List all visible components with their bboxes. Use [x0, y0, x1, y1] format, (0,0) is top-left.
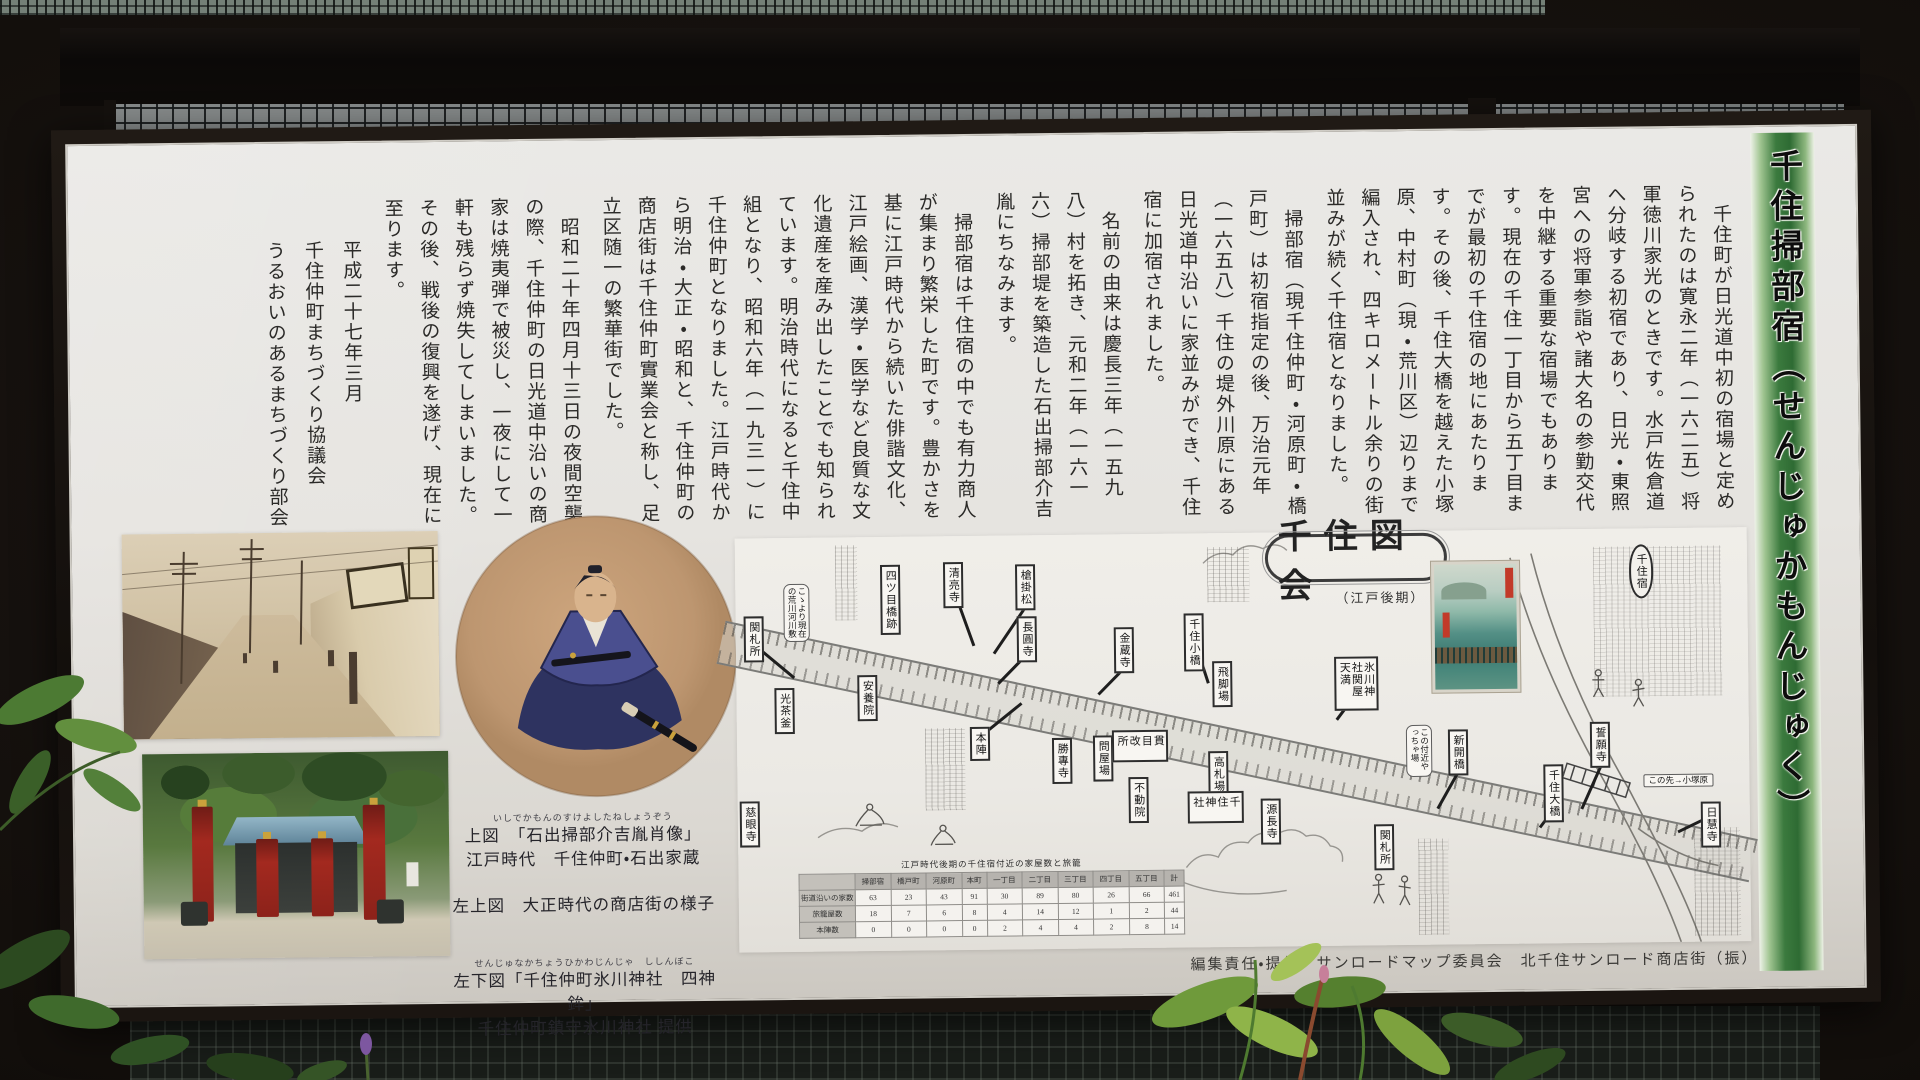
map-label: 慈眼寺	[740, 801, 761, 847]
paragraph: 掃部宿（現千住仲町・河原町・橋戸町）は初宿指定の後、万治元年（一六五八）千住の堤…	[1133, 188, 1312, 522]
map-label: 関札所	[744, 616, 765, 662]
map-label: 氷川神社関屋天満	[1334, 656, 1379, 710]
red-banner	[311, 838, 333, 916]
map-label: 千住小橋	[1184, 613, 1205, 671]
ukiyoe-cartouche	[1505, 568, 1514, 598]
handwritten-notes	[1593, 545, 1723, 696]
fence-mesh-top	[0, 0, 1545, 15]
shrine-roof	[222, 815, 369, 845]
caption-portrait-source: 江戸時代 千住仲町・石出家蔵	[447, 846, 719, 873]
household-table-wrap: 江戸時代後期の千住宿付近の家屋数と旅籠 掃部宿橋戸町河原町本町一丁目二丁目三丁目…	[798, 856, 1185, 939]
map-label: 清亮寺	[943, 562, 964, 608]
map-label: この付近やっちゃ場	[1406, 725, 1432, 777]
photo-hikawa-shrine	[142, 751, 450, 959]
caption-block: いしでかもんのすけよしたねしょうぞう 上図 「石出掃部介吉胤肖像」 江戸時代 千…	[447, 809, 722, 1042]
ukiyoe-cartouche	[1443, 612, 1450, 637]
map-label: こゝより現在の荒川河川敷	[783, 584, 809, 642]
signature-date: 平成二十七年三月	[332, 199, 371, 531]
map-label: 日慧寺	[1701, 801, 1722, 847]
stone-guardian	[376, 899, 404, 924]
map-label: 誓願寺	[1590, 722, 1611, 768]
ukiyoe-inset	[1430, 560, 1522, 694]
map-label: 金蔵寺	[1114, 627, 1135, 673]
body-text: 千住町が日光道中初の宿場と定められたのは寛永二年（一六二五）将軍徳川家光のときで…	[138, 183, 1742, 533]
map-label: 関札所	[1374, 824, 1395, 870]
map-label: 槍掛松	[1015, 564, 1036, 610]
map-label: この先→小塚原	[1643, 774, 1713, 788]
map-label: 貫目改所	[1112, 730, 1169, 763]
illustrated-map: 千住図会 （江戸後期）	[735, 527, 1752, 952]
fence-rail	[60, 28, 1860, 106]
title-strip: 千住掃部宿（せんじゅかもんじゅく）	[1750, 132, 1824, 971]
map-label: 千住宿	[1629, 544, 1654, 598]
paragraph: 昭和二十年四月十三日の夜間空襲の際、千住仲町の日光道中沿いの商家は焼夷弾で被災し…	[374, 196, 589, 530]
map-label: 勝專寺	[1052, 738, 1073, 784]
map-label: 千住神社	[1188, 791, 1245, 824]
household-table: 掃部宿橋戸町河原町本町一丁目二丁目三丁目四丁目五丁目計街道沿いの家数632343…	[798, 870, 1185, 939]
map-label: 不動院	[1128, 777, 1149, 823]
caption-portrait: 上図 「石出掃部介吉胤肖像」	[447, 822, 719, 849]
red-banner	[256, 839, 278, 917]
signboard-panel: 千住掃部宿（せんじゅかもんじゅく） 千住町が日光道中初の宿場と定められたのは寛永…	[65, 124, 1867, 1008]
paragraph: 名前の由来は慶長三年（一五九八）村を拓き、元和二年（一六一六）掃部堤を築造した石…	[986, 190, 1130, 524]
handwritten-notes	[835, 545, 858, 620]
shop-sign	[346, 562, 409, 609]
map-subtitle: （江戸後期）	[1335, 587, 1425, 607]
map-label: 四ツ目橋跡	[880, 565, 901, 635]
handwritten-notes	[1418, 839, 1449, 935]
portrait-ishide-kamon	[453, 514, 738, 799]
signature-org2: うるおいのあるまちづくり部会	[256, 200, 295, 532]
shrine-building	[235, 842, 358, 913]
map-label: 千住大橋	[1543, 764, 1564, 822]
ukiyoe-hill	[1441, 582, 1486, 600]
photo-taisho-street	[122, 531, 440, 740]
stone-guardian	[180, 901, 208, 926]
ukiyoe-scene	[1434, 564, 1517, 690]
caption-shrine-credit: 千住仲町鎮守氷川神社 提供	[449, 1014, 721, 1041]
paragraph: 千住町が日光道中初の宿場と定められたのは寛永二年（一六二五）将軍徳川家光のときで…	[1316, 183, 1741, 520]
map-label: 長圓寺	[1017, 616, 1038, 662]
map-label: 安養院	[857, 675, 878, 721]
map-title-cartouche: 千住図会	[1265, 533, 1448, 583]
board-title: 千住掃部宿（せんじゅかもんじゅく）	[1758, 132, 1816, 970]
paragraph: 掃部宿は千住宿の中でも有力商人が集まり繁栄した町です。豊かさを基に江戸時代から続…	[592, 192, 982, 528]
map-label: 光茶釜	[774, 688, 795, 734]
signature-org: 千住仲町まちづくり協議会	[294, 199, 333, 531]
map-label: 問屋場	[1093, 735, 1114, 781]
ukiyoe-bridge	[1435, 646, 1517, 663]
map-label: 飛脚場	[1212, 661, 1233, 707]
credit-line: 編集責任・提供 サンロードマップ委員会 北千住サンロード商店街（振）	[1086, 947, 1758, 976]
signboard-frame: 千住掃部宿（せんじゅかもんじゅく） 千住町が日光道中初の宿場と定められたのは寛永…	[51, 110, 1881, 1023]
portrait-art	[453, 514, 738, 799]
map-label: 本陣	[970, 727, 990, 761]
map-label: 新開橋	[1448, 729, 1469, 775]
map-label: 源長寺	[1261, 798, 1282, 844]
caption-shrine-photo: 左下図「千住仲町氷川神社 四神鉾」	[449, 967, 722, 1018]
photo-of-signboard: 千住掃部宿（せんじゅかもんじゅく） 千住町が日光道中初の宿場と定められたのは寛永…	[0, 0, 1920, 1080]
handwritten-notes	[925, 728, 966, 810]
caption-street-photo: 左上図 大正時代の商店街の様子	[448, 892, 720, 919]
handwritten-notes	[1207, 547, 1250, 602]
white-sign	[406, 862, 419, 887]
shop-sign	[408, 547, 435, 599]
